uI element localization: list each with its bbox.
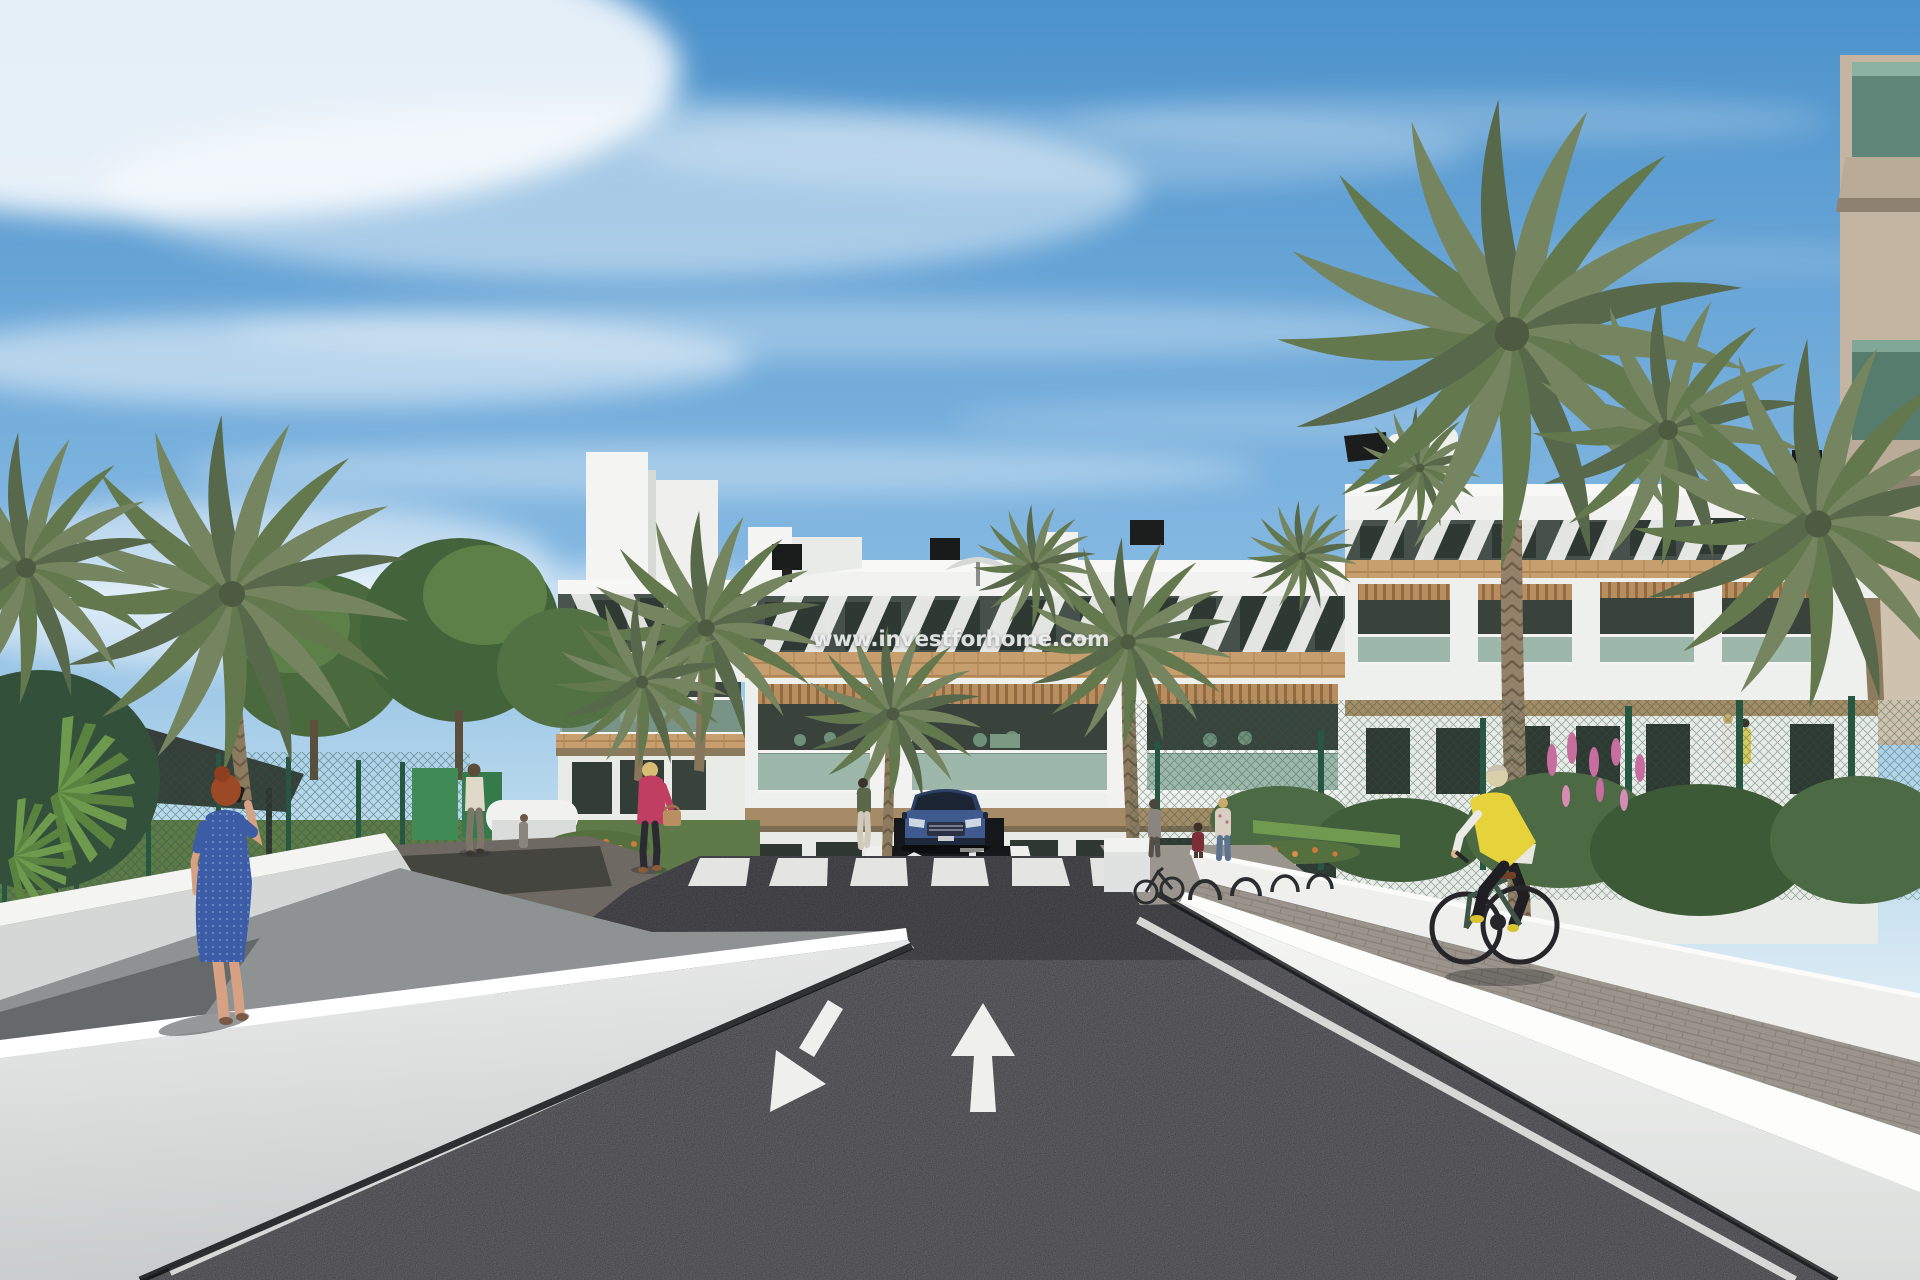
chimney-icon <box>930 538 960 560</box>
handbag-icon <box>663 810 681 826</box>
garden-gate <box>412 768 458 840</box>
chimney-icon <box>772 544 802 570</box>
planter-corner <box>1104 838 1150 854</box>
watermark: www.investforhome.com <box>813 629 1109 651</box>
render-viewport: www.investforhome.com <box>0 0 1920 1280</box>
distant-person <box>519 814 528 848</box>
